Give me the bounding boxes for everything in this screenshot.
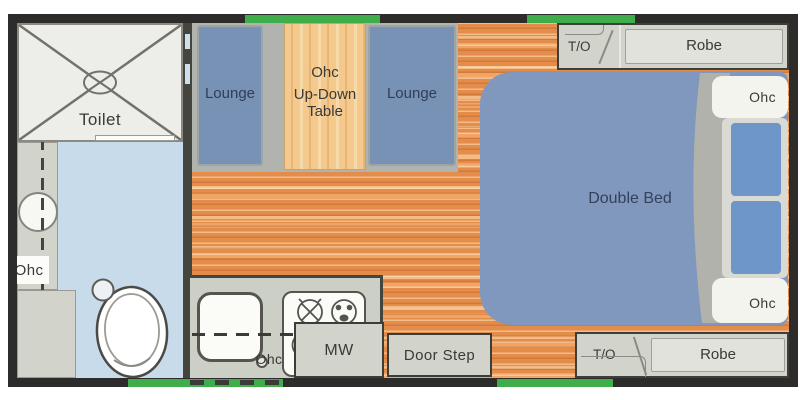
toilet-room-label: Toilet [17, 110, 183, 130]
lounge-right-label: Lounge [370, 85, 454, 102]
lounge-left-label: Lounge [199, 85, 261, 102]
up-down-table: Ohc Up-Down Table [284, 23, 366, 170]
top-to-label: T/O [568, 39, 591, 54]
wash-basin-icon [18, 192, 58, 232]
microwave: MW [294, 322, 384, 378]
overhead-cabinet-bed-top: Ohc [712, 76, 788, 118]
outer-wall-left [8, 14, 17, 387]
bed-head-shelf [722, 118, 788, 278]
cabinet-diagonal-line [598, 30, 613, 64]
window-strip-top-left [245, 15, 380, 23]
robe-bottom-panel: Robe [651, 338, 785, 372]
door-step: Door Step [387, 333, 492, 377]
vanity-cabinet [17, 290, 76, 378]
overhead-cabinet-label-kitchen: Ohc [246, 351, 292, 367]
toilet-bowl-icon [88, 272, 172, 378]
bench-edge-dashes [190, 380, 290, 385]
bathroom-door-gap [185, 64, 190, 84]
lounge-seat-left: Lounge [197, 25, 263, 166]
window-strip-top-right [527, 15, 635, 23]
robe-top-panel: Robe [625, 29, 783, 64]
outer-wall-bottom [8, 378, 798, 387]
window-strip-bottom-right [497, 379, 613, 387]
outer-wall-right [789, 14, 798, 387]
top-cabinet-block: T/O Robe [557, 23, 789, 70]
microwave-label: MW [296, 342, 382, 360]
overhead-cabinet-bed-bottom: Ohc [712, 278, 788, 323]
robe-top-label: Robe [626, 37, 782, 54]
door-step-label: Door Step [389, 347, 490, 364]
ohc-bed-top-label: Ohc [749, 89, 776, 105]
pillow [731, 201, 781, 274]
outer-wall-top [8, 14, 798, 23]
floorplan-canvas: Toilet Ohc Lounge Ohc Up-Down Table Loun… [0, 0, 800, 400]
table-label-line1: Ohc [285, 64, 365, 81]
bottom-cabinet-block: T/O Robe [575, 332, 789, 378]
table-label-line2: Up-Down [285, 86, 365, 103]
ohc-bed-bottom-label: Ohc [749, 295, 776, 311]
cabinet-divider [619, 25, 621, 68]
lounge-seat-right: Lounge [368, 25, 456, 166]
cabinet-door-line [581, 356, 646, 377]
pillow [731, 123, 781, 196]
robe-bottom-label: Robe [652, 346, 784, 363]
cabinet-door-line [565, 25, 604, 35]
table-label-line3: Table [285, 103, 365, 120]
bathroom-door-gap [185, 34, 190, 49]
shower-step [95, 135, 175, 141]
